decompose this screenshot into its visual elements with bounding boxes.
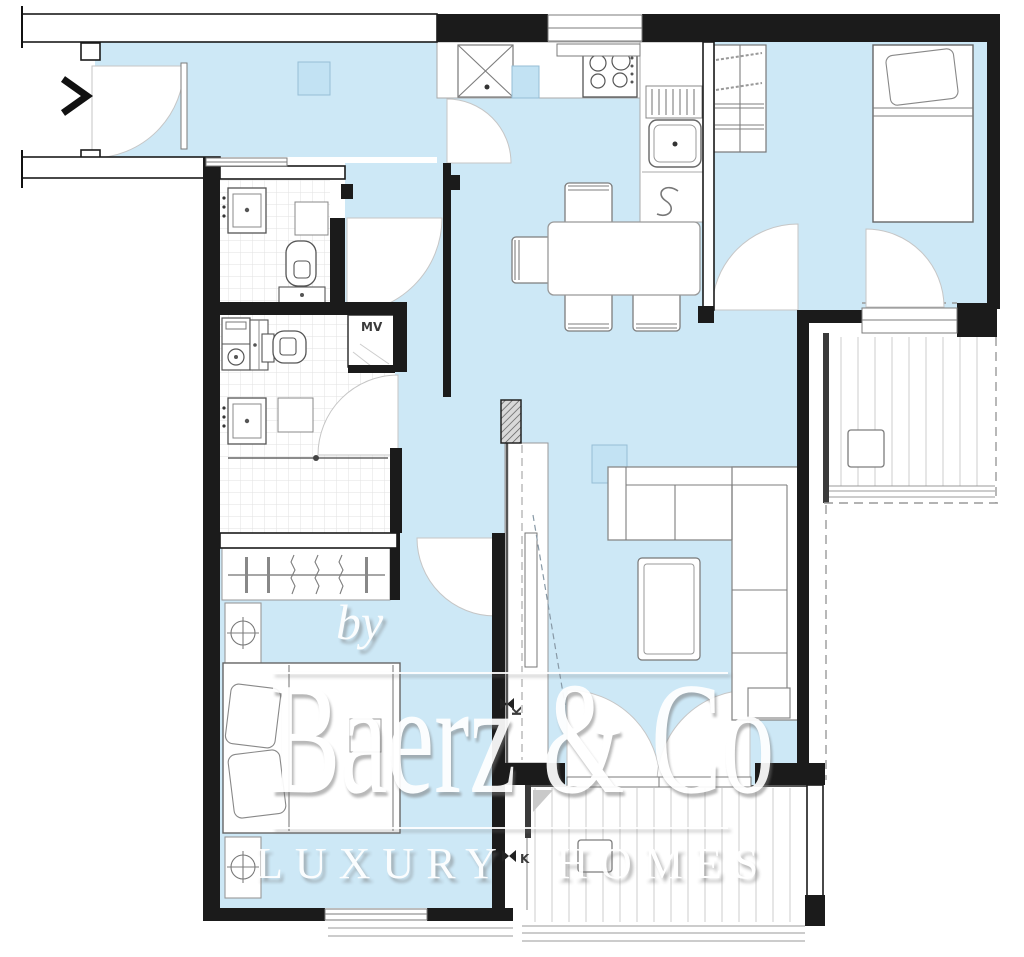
bathroom-divider-wall — [220, 302, 393, 315]
fridge-icon — [458, 45, 513, 97]
washing-machine-icon — [222, 318, 250, 370]
terrace-doors — [567, 777, 751, 787]
sliding-door-panel — [525, 533, 537, 667]
sink-icon — [646, 86, 702, 167]
exterior-wall — [437, 14, 548, 42]
mv-label: MV — [361, 320, 383, 334]
pillow — [227, 749, 286, 819]
entrance-arrow-icon — [63, 79, 87, 113]
balcony-table — [848, 430, 884, 467]
double-bed — [223, 663, 400, 833]
bathroom1-wall — [220, 166, 345, 179]
blanket — [350, 719, 381, 752]
hanger-icon — [365, 557, 368, 593]
bedroom2-wall — [703, 42, 714, 310]
terrace-side-wall — [525, 785, 531, 838]
shower-tray — [295, 202, 328, 235]
terrace-corner-wall — [805, 895, 825, 926]
entrance-door-leaf — [181, 63, 187, 149]
living-room-wall — [497, 763, 565, 785]
washbasin-icon — [222, 398, 266, 444]
vent-square — [298, 62, 330, 95]
bedroom1-wall — [492, 533, 505, 921]
closet — [222, 548, 390, 600]
tap-hall-label: K — [510, 706, 524, 716]
exterior-wall — [642, 14, 995, 42]
washbasin-icon — [222, 188, 266, 233]
door-post — [698, 306, 714, 323]
bedroom1-window — [325, 909, 427, 920]
bathroom-window — [206, 158, 287, 166]
exterior-wall — [987, 14, 1000, 309]
coffee-table — [638, 558, 700, 660]
exterior-wall — [22, 157, 220, 178]
door-post — [341, 184, 353, 199]
single-bed — [873, 45, 973, 222]
kitchen-window — [548, 15, 642, 56]
exterior-wall — [203, 908, 325, 921]
dining-table — [548, 222, 700, 295]
mv-cabinet: MV — [348, 315, 395, 367]
balcony-door — [862, 308, 957, 333]
hall-wall — [443, 163, 451, 397]
wardrobe — [714, 45, 766, 152]
nightstand — [225, 837, 261, 898]
bathroom1-wall — [330, 218, 345, 302]
door-post — [443, 175, 460, 190]
floor-plan: MV — [0, 0, 1024, 957]
door-post — [81, 43, 100, 60]
pillar — [501, 400, 521, 443]
living-room-wall — [755, 763, 825, 785]
exterior-wall — [203, 157, 220, 921]
shower-tray — [278, 398, 313, 432]
pillow — [885, 48, 959, 106]
living-room-wall — [797, 310, 809, 785]
nightstand — [225, 603, 261, 663]
pillow — [225, 683, 282, 749]
bathroom2-wall — [390, 448, 402, 533]
toilet-icon — [262, 331, 306, 363]
bathroom2-wall — [393, 302, 407, 372]
tap-terrace-label: K — [520, 852, 530, 866]
hanger-icon — [245, 557, 248, 593]
hanger-icon — [267, 557, 270, 593]
terrace-table — [578, 840, 612, 872]
terrace-decking — [533, 788, 805, 922]
mv-cabinet-wall — [348, 365, 395, 373]
vent-square — [512, 66, 539, 98]
balcony-side-wall — [823, 333, 829, 503]
terrace-right-wall — [807, 785, 823, 897]
exterior-wall — [22, 14, 437, 42]
floor-plan-drawing: MV — [0, 0, 1024, 957]
bedroom1-wall — [220, 533, 397, 548]
